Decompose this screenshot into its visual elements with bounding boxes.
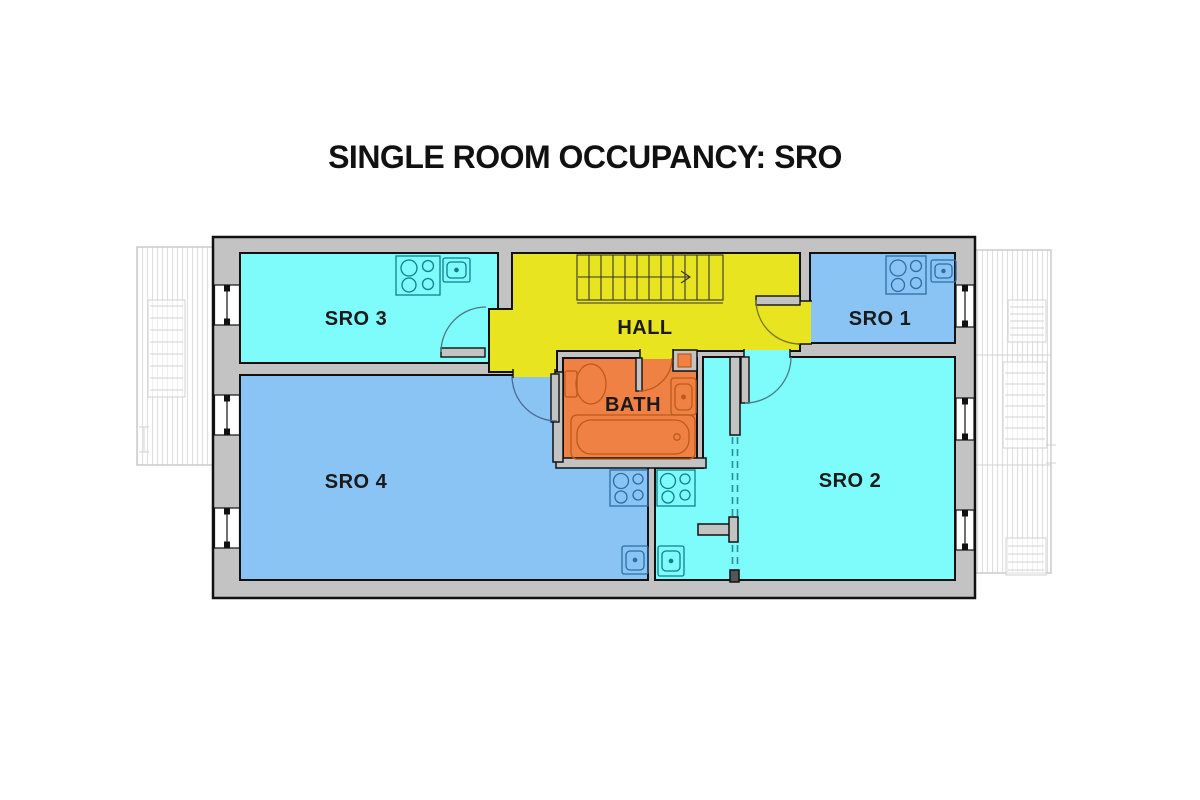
room-label-sro4: SRO 4 — [325, 471, 388, 493]
window-left-1 — [215, 285, 240, 325]
room-label-bath: BATH — [605, 394, 661, 416]
window-left-3 — [215, 508, 240, 548]
left-deck — [137, 247, 213, 465]
room-label-sro3: SRO 3 — [325, 308, 388, 330]
floor-plan: SRO 3 HALL SRO 1 SRO 4 BATH SRO 2 SINGLE… — [0, 0, 1200, 800]
right-deck — [975, 250, 1056, 575]
window-right-2 — [956, 398, 974, 440]
room-label-sro2: SRO 2 — [819, 470, 882, 492]
window-right-1 — [956, 285, 974, 327]
page-title: SINGLE ROOM OCCUPANCY: SRO — [328, 139, 842, 175]
window-right-3 — [956, 510, 974, 550]
window-left-2 — [215, 395, 240, 435]
room-label-sro1: SRO 1 — [849, 308, 912, 330]
room-label-hall: HALL — [617, 317, 672, 339]
